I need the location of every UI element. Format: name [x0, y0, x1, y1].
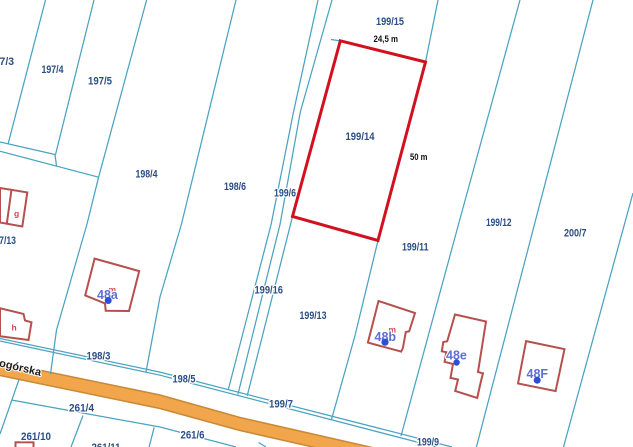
svg-text:g: g	[14, 209, 19, 219]
svg-text:197/13: 197/13	[0, 235, 16, 247]
svg-text:198/5: 198/5	[173, 374, 196, 386]
svg-text:199/15: 199/15	[376, 16, 404, 28]
svg-text:197/5: 197/5	[88, 76, 112, 88]
svg-text:198/6: 198/6	[224, 181, 246, 193]
svg-text:261/10: 261/10	[21, 431, 51, 443]
svg-text:261/4: 261/4	[69, 403, 95, 415]
svg-text:199/6: 199/6	[274, 188, 296, 200]
svg-text:24,5 m: 24,5 m	[374, 34, 399, 45]
svg-text:199/12: 199/12	[486, 217, 512, 229]
svg-text:199/16: 199/16	[255, 285, 284, 297]
svg-text:261/6: 261/6	[181, 430, 205, 442]
svg-text:200/7: 200/7	[564, 228, 587, 240]
svg-text:198/4: 198/4	[136, 169, 159, 181]
svg-text:197/3: 197/3	[0, 56, 14, 68]
svg-text:199/9: 199/9	[417, 437, 439, 447]
svg-text:199/13: 199/13	[300, 310, 327, 322]
svg-text:261/11: 261/11	[92, 442, 121, 447]
svg-text:199/14: 199/14	[346, 131, 376, 143]
svg-text:50 m: 50 m	[410, 152, 428, 163]
svg-text:197/4: 197/4	[42, 64, 65, 76]
svg-text:198/3: 198/3	[87, 351, 111, 363]
svg-text:199/7: 199/7	[269, 399, 293, 411]
svg-text:h: h	[12, 323, 17, 333]
svg-text:199/11: 199/11	[402, 242, 429, 254]
